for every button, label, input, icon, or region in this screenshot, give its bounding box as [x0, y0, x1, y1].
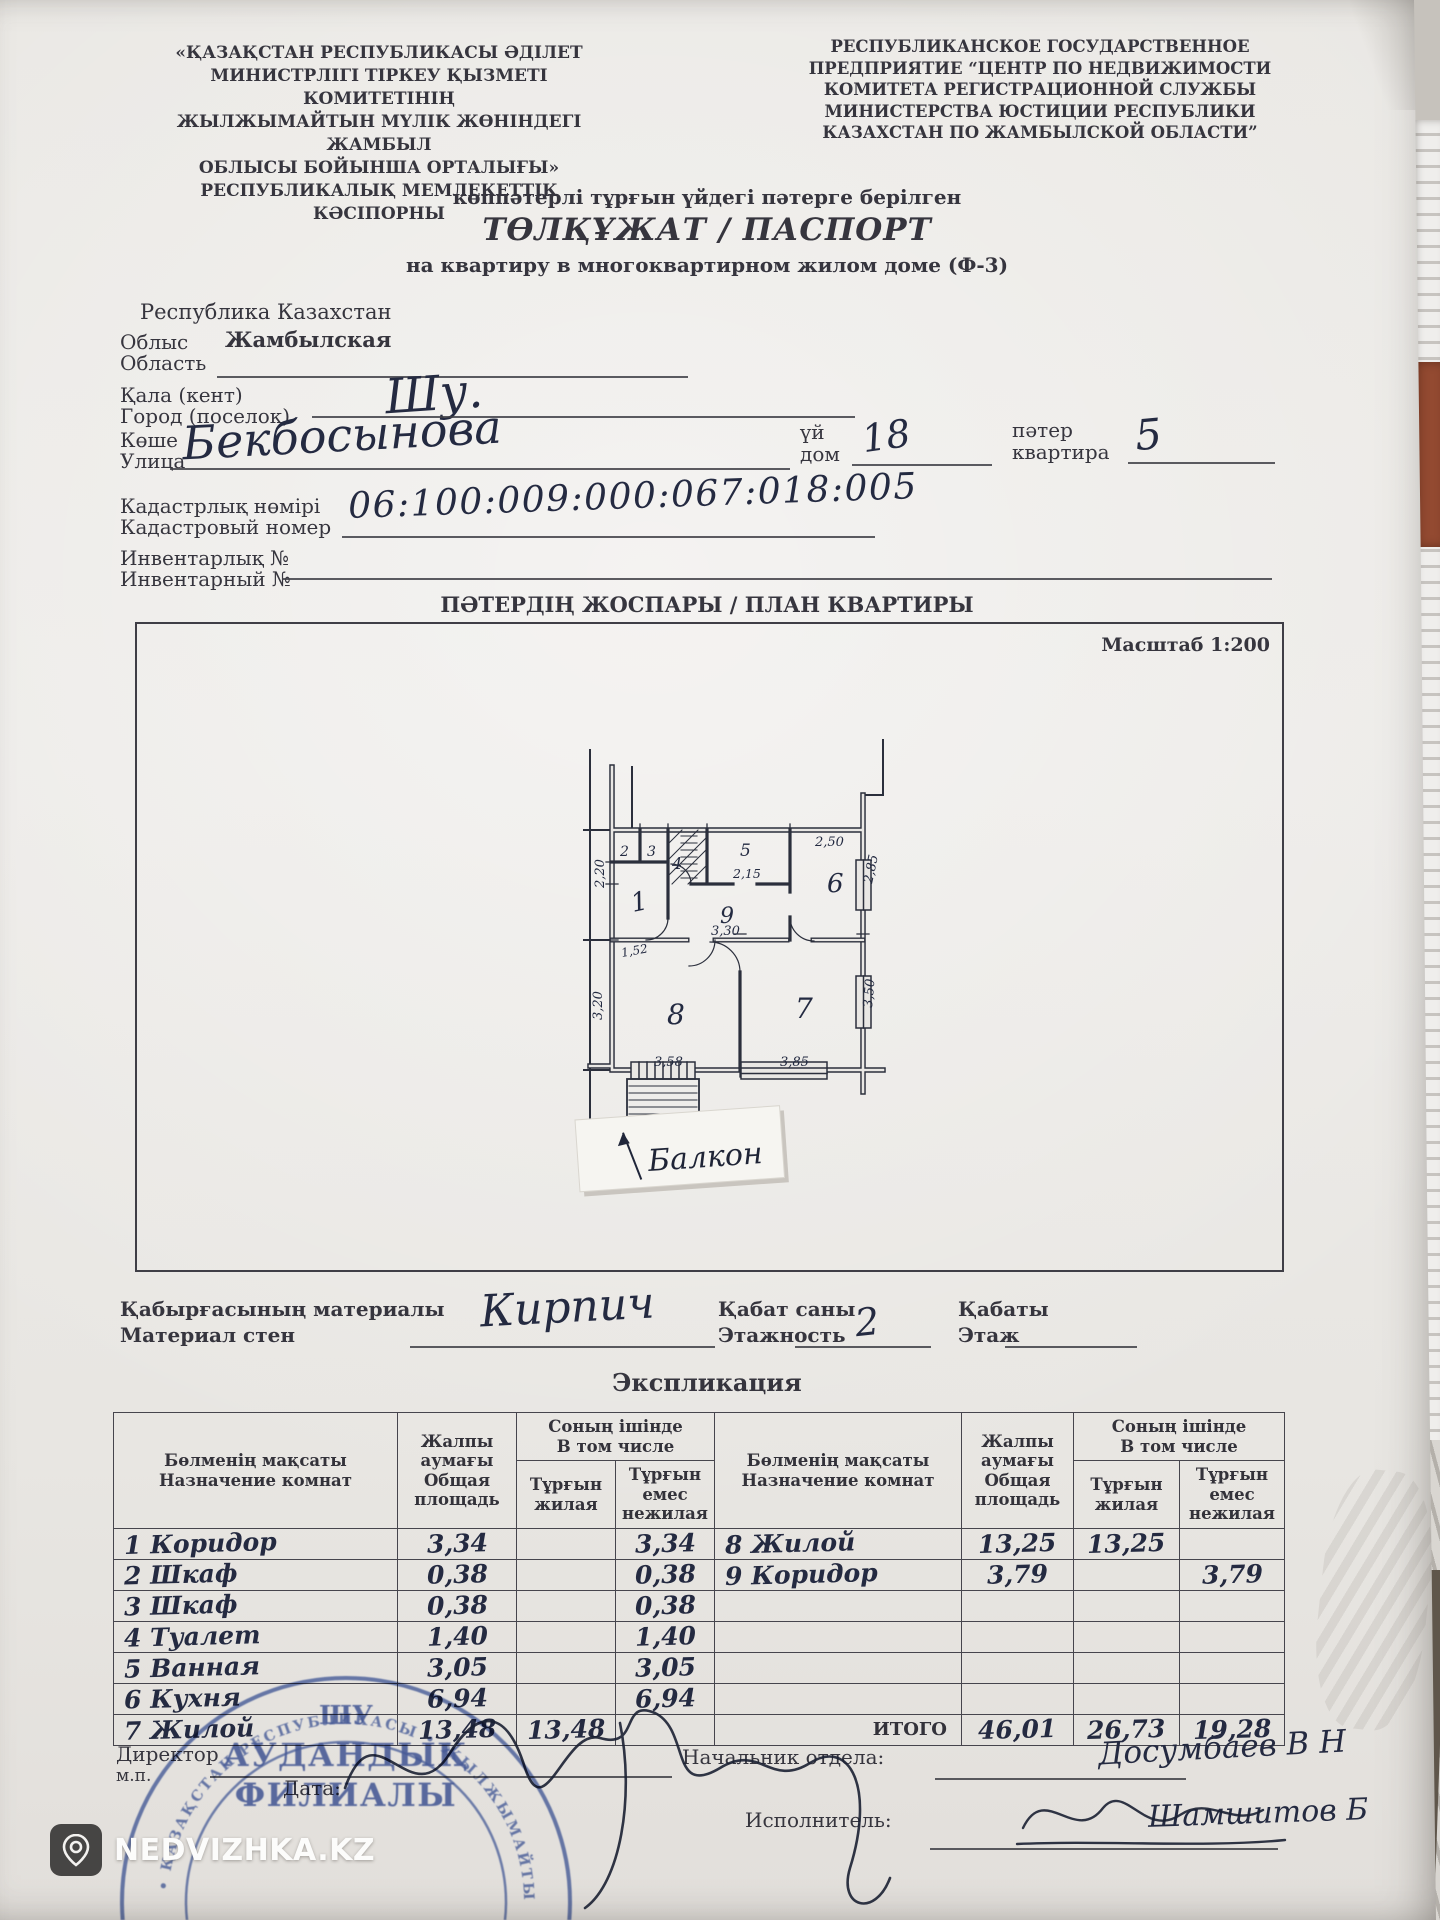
dom-label: дом — [800, 442, 840, 466]
col-header-incl-right: Соның ішіндеВ том числе — [1074, 1413, 1285, 1461]
floor-plan-drawing: 1 2 3 4 5 6 9 8 7 2,20 1,52 2,15 2,50 2,… — [135, 622, 1280, 1268]
header-right-line: МИНИСТЕРСТВА ЮСТИЦИИ РЕСПУБЛИКИ — [790, 101, 1290, 123]
table-row: 2 Шкаф0,380,38 9 Коридор3,793,79 — [114, 1560, 1285, 1591]
paper-corner-shade — [1350, 0, 1416, 110]
plan-dim-room7-bottom: 3,85 — [780, 1055, 809, 1070]
col-header-purpose-right: Бөлменің мақсатыНазначение комнат — [715, 1413, 962, 1529]
floors-label-kk: Қабат саны — [718, 1297, 855, 1321]
plan-dim-room6-top: 2,50 — [814, 835, 844, 850]
paper-wrinkle — [1307, 1465, 1440, 1735]
header-right-line: КАЗАХСТАН ПО ЖАМБЫЛСКОЙ ОБЛАСТИ” — [790, 122, 1290, 144]
title-kicker: көппәтерлі тұрғын үйдегі пәтерге берілге… — [0, 185, 1414, 209]
kvartira-value: 5 — [1133, 409, 1164, 460]
col-header-purpose-left: Бөлменің мақсатыНазначение комнат — [114, 1413, 398, 1529]
stamp-line1: АУДАНДЫҚ — [223, 1736, 469, 1774]
col-header-total-left: Жалпыаумағы Общаяплощадь — [398, 1413, 517, 1529]
plan-dim-room1-bottom: 1,52 — [620, 942, 649, 960]
col-header-nonliving-left: Тұрғынемеснежилая — [616, 1461, 715, 1529]
table-row: 1 Коридор3,343,34 8 Жилой13,2513,25 — [114, 1529, 1285, 1560]
col-header-nonliving-right: Тұрғынемеснежилая — [1180, 1461, 1285, 1529]
stamp-city: ШУ — [319, 1701, 373, 1731]
plan-room-8: 8 — [667, 998, 685, 1031]
location-pin-icon — [61, 1833, 91, 1867]
header-right-org: РЕСПУБЛИКАНСКОЕ ГОСУДАРСТВЕННОЕ ПРЕДПРИЯ… — [790, 36, 1290, 144]
floors-value: 2 — [853, 1299, 882, 1345]
document-title: ТӨЛҚҰЖАТ / ПАСПОРТ — [0, 212, 1414, 248]
plan-dim-corridor: 3,30 — [711, 924, 740, 939]
floor-label-kk: Қабаты — [958, 1297, 1049, 1321]
photo-of-document: «ҚАЗАҚСТАН РЕСПУБЛИКАСЫ ӘДІЛЕТ МИНИСТРЛІ… — [0, 0, 1440, 1920]
header-right-line: КОМИТЕТА РЕГИСТРАЦИОННОЙ СЛУЖБЫ — [790, 79, 1290, 101]
explication-heading: Экспликация — [0, 1368, 1414, 1397]
floor-underline — [1005, 1346, 1137, 1348]
header-left-line: ЖЫЛЖЫМАЙТЫН МҮЛІК ЖӨНІНДЕГІ ЖАМБЫЛ — [140, 111, 618, 157]
kadastr-underline — [342, 536, 875, 538]
floor-label-ru: Этаж — [958, 1323, 1019, 1347]
pater-label: пәтер — [1012, 418, 1073, 442]
country-line: Республика Казахстан — [140, 300, 391, 324]
oblast-value: Жамбылская — [225, 327, 391, 352]
title-sub: на квартиру в многоквартирном жилом доме… — [0, 253, 1414, 277]
watermark-text: NEDVIZHKA.KZ — [114, 1833, 375, 1868]
kvartira-underline — [1128, 462, 1275, 464]
material-value: Кирпич — [479, 1277, 656, 1337]
plan-room-5: 5 — [740, 841, 751, 861]
plan-room-1: 1 — [628, 886, 650, 919]
plan-dim-room8-left: 3,20 — [591, 991, 606, 1020]
balcony-note-slip: Балкон — [575, 1105, 789, 1196]
watermark: NEDVIZHKA.KZ — [50, 1824, 375, 1876]
kadastr-label-ru: Кадастровый номер — [120, 515, 331, 539]
executor-signature — [1005, 1770, 1305, 1865]
material-underline — [410, 1346, 715, 1348]
material-label-kk: Қабырғасының материалы — [120, 1297, 445, 1321]
floors-label-ru: Этажность — [718, 1323, 846, 1347]
plan-room-2: 2 — [619, 844, 629, 860]
header-left-line: МИНИСТРЛІГІ ТІРКЕУ ҚЫЗМЕТІ КОМИТЕТІНІҢ — [140, 65, 618, 111]
plan-dim-room8-bottom: 3,58 — [654, 1055, 683, 1070]
plan-dim-room7-right: 3,50 — [861, 978, 878, 1008]
plan-heading: ПӘТЕРДІҢ ЖОСПАРЫ / ПЛАН КВАРТИРЫ — [0, 592, 1414, 617]
col-header-living-right: Тұрғынжилая — [1074, 1461, 1180, 1529]
dom-value: 18 — [859, 411, 913, 461]
material-label-ru: Материал стен — [120, 1323, 295, 1347]
stamp-line2: ФИЛИАЛЫ — [235, 1776, 457, 1814]
plan-room-7: 7 — [795, 992, 813, 1025]
header-left-line: ОБЛЫСЫ БОЙЫНША ОРТАЛЫҒЫ» — [140, 157, 618, 180]
kvartira-label: квартира — [1012, 440, 1110, 464]
inventar-underline — [282, 578, 1272, 580]
kadastr-value: 06:100:009:000:067:018:005 — [347, 466, 918, 527]
plan-dim-room1-left: 2,20 — [593, 859, 608, 889]
uy-label: үй — [800, 420, 825, 444]
plan-room-6: 6 — [827, 869, 844, 899]
col-header-living-left: Тұрғынжилая — [517, 1461, 616, 1529]
col-header-total-right: Жалпыаумағы Общаяплощадь — [962, 1413, 1074, 1529]
plan-dim-room5: 2,15 — [732, 866, 761, 881]
col-header-incl-left: Соның ішіндеВ том числе — [517, 1413, 715, 1461]
header-left-line: «ҚАЗАҚСТАН РЕСПУБЛИКАСЫ ӘДІЛЕТ — [140, 42, 618, 65]
ulitsa-underline — [170, 468, 790, 470]
inventar-label-ru: Инвентарный № — [120, 567, 291, 591]
branch-stamp: • ҚАЗАҚСТАН РЕСПУБЛИКАСЫ • ЖЫЛЖЫМАЙТЫН М… — [108, 1650, 588, 1920]
plan-room-3: 3 — [647, 844, 656, 860]
header-right-line: ПРЕДПРИЯТИЕ “ЦЕНТР ПО НЕДВИЖИМОСТИ — [790, 58, 1290, 80]
nedvizhka-logo-icon — [50, 1824, 102, 1876]
header-right-line: РЕСПУБЛИКАНСКОЕ ГОСУДАРСТВЕННОЕ — [790, 36, 1290, 58]
plan-room-4: 4 — [671, 854, 682, 873]
table-row: 4 Туалет1,401,40 — [114, 1622, 1285, 1653]
table-row: 3 Шкаф0,380,38 — [114, 1591, 1285, 1622]
dom-underline — [852, 464, 992, 466]
oblast-label: Область — [120, 351, 206, 375]
floors-underline — [795, 1346, 931, 1348]
document-paper: «ҚАЗАҚСТАН РЕСПУБЛИКАСЫ ӘДІЛЕТ МИНИСТРЛІ… — [0, 0, 1440, 1920]
